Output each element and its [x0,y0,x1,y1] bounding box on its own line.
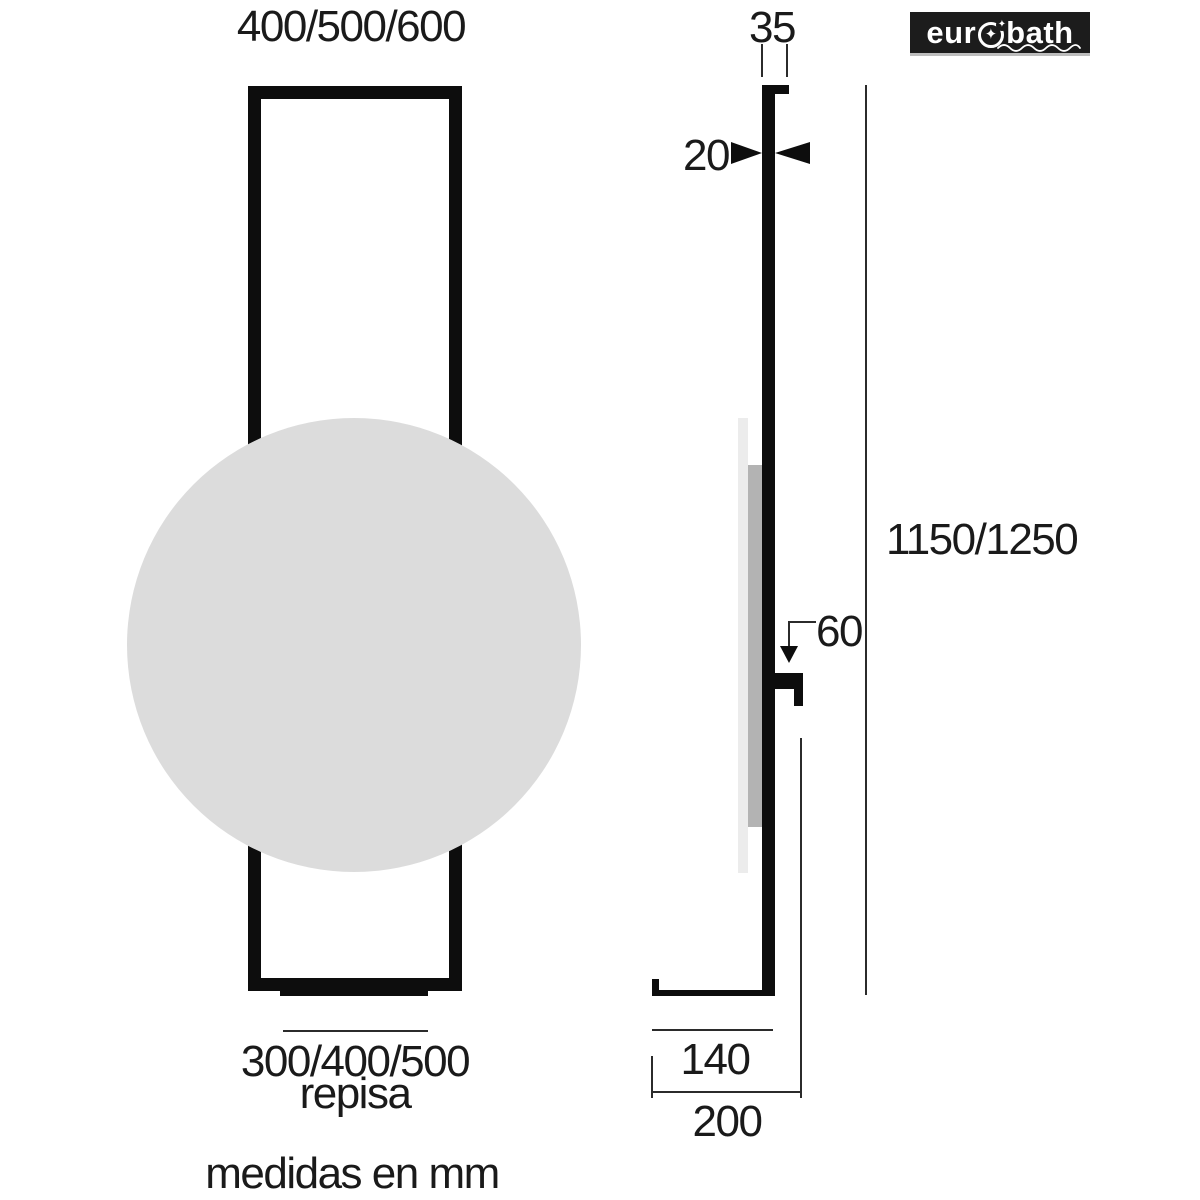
top-cap-depth-label: 35 [749,6,795,50]
thickness-arrow-right-icon [775,142,810,164]
shelf-bracket-lip-side-view [794,689,803,706]
cap-extension-line-right [786,44,788,77]
logo-sparkle-icon: ✦ [996,19,1008,31]
eurobath-logo: eur ✦ ✦ bath [910,12,1090,56]
bottom-foot-side-view [652,990,775,996]
shelf-offset-label: 60 [816,610,862,654]
panel-thickness-label: 20 [683,134,729,178]
round-mirror-front-view [127,418,581,872]
units-note-label: medidas en mm [205,1152,499,1196]
shelf-caption-label: repisa [300,1072,411,1116]
logo-wave-icon [996,42,1082,52]
technical-drawing-mirror: 400/500/600 300/400/500 repisa medidas e… [0,0,1200,1200]
shelf-offset-leader-vertical [788,621,790,648]
cap-extension-line-left [761,44,763,77]
shelf-offset-arrow-icon [780,646,798,663]
shelf-offset-leader-horizontal [788,621,816,623]
total-depth-label: 200 [693,1100,762,1144]
shelf-depth-dimension-line [652,1029,773,1031]
top-cap-side-view [762,85,789,94]
shelf-bracket-arm-side-view [775,673,803,689]
bottom-foot-lip-side-view [652,979,659,990]
height-dimension-label: 1150/1250 [886,518,1077,562]
logo-text-left: eur [926,15,976,51]
shelf-width-dimension-line [283,1030,428,1032]
shelf-front-view [280,991,428,996]
shelf-depth-label: 140 [681,1038,750,1082]
total-depth-dimension-line [652,1091,802,1093]
mirror-glass-edge-light [738,418,748,873]
front-width-dimension-label: 400/500/600 [237,5,465,49]
thickness-arrow-left-icon [731,142,762,164]
panel-profile-side-view [762,85,775,996]
mirror-glass-edge-dark [748,465,762,827]
total-depth-extension-line-right [800,738,802,1098]
height-dimension-line [865,85,867,995]
